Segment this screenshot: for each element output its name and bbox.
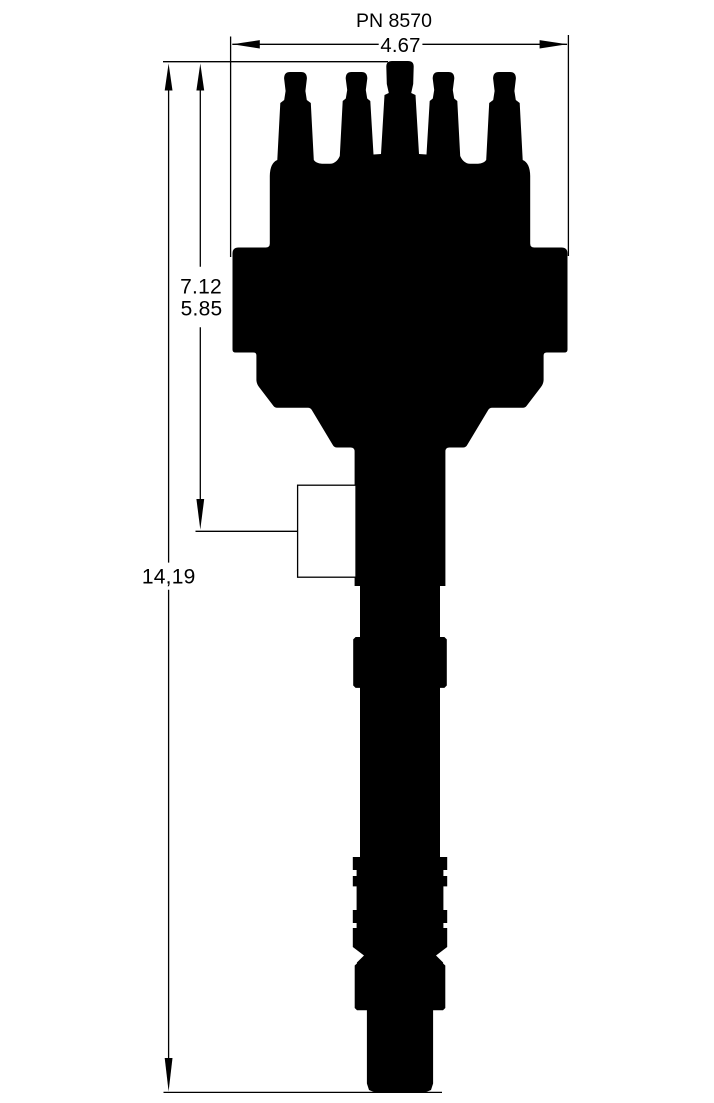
svg-text:5.85: 5.85 [181, 298, 223, 321]
svg-text:PN 8570: PN 8570 [356, 10, 432, 32]
svg-text:7.12: 7.12 [180, 276, 222, 299]
svg-text:14,19: 14,19 [142, 565, 196, 588]
svg-text:4.67: 4.67 [380, 35, 420, 57]
